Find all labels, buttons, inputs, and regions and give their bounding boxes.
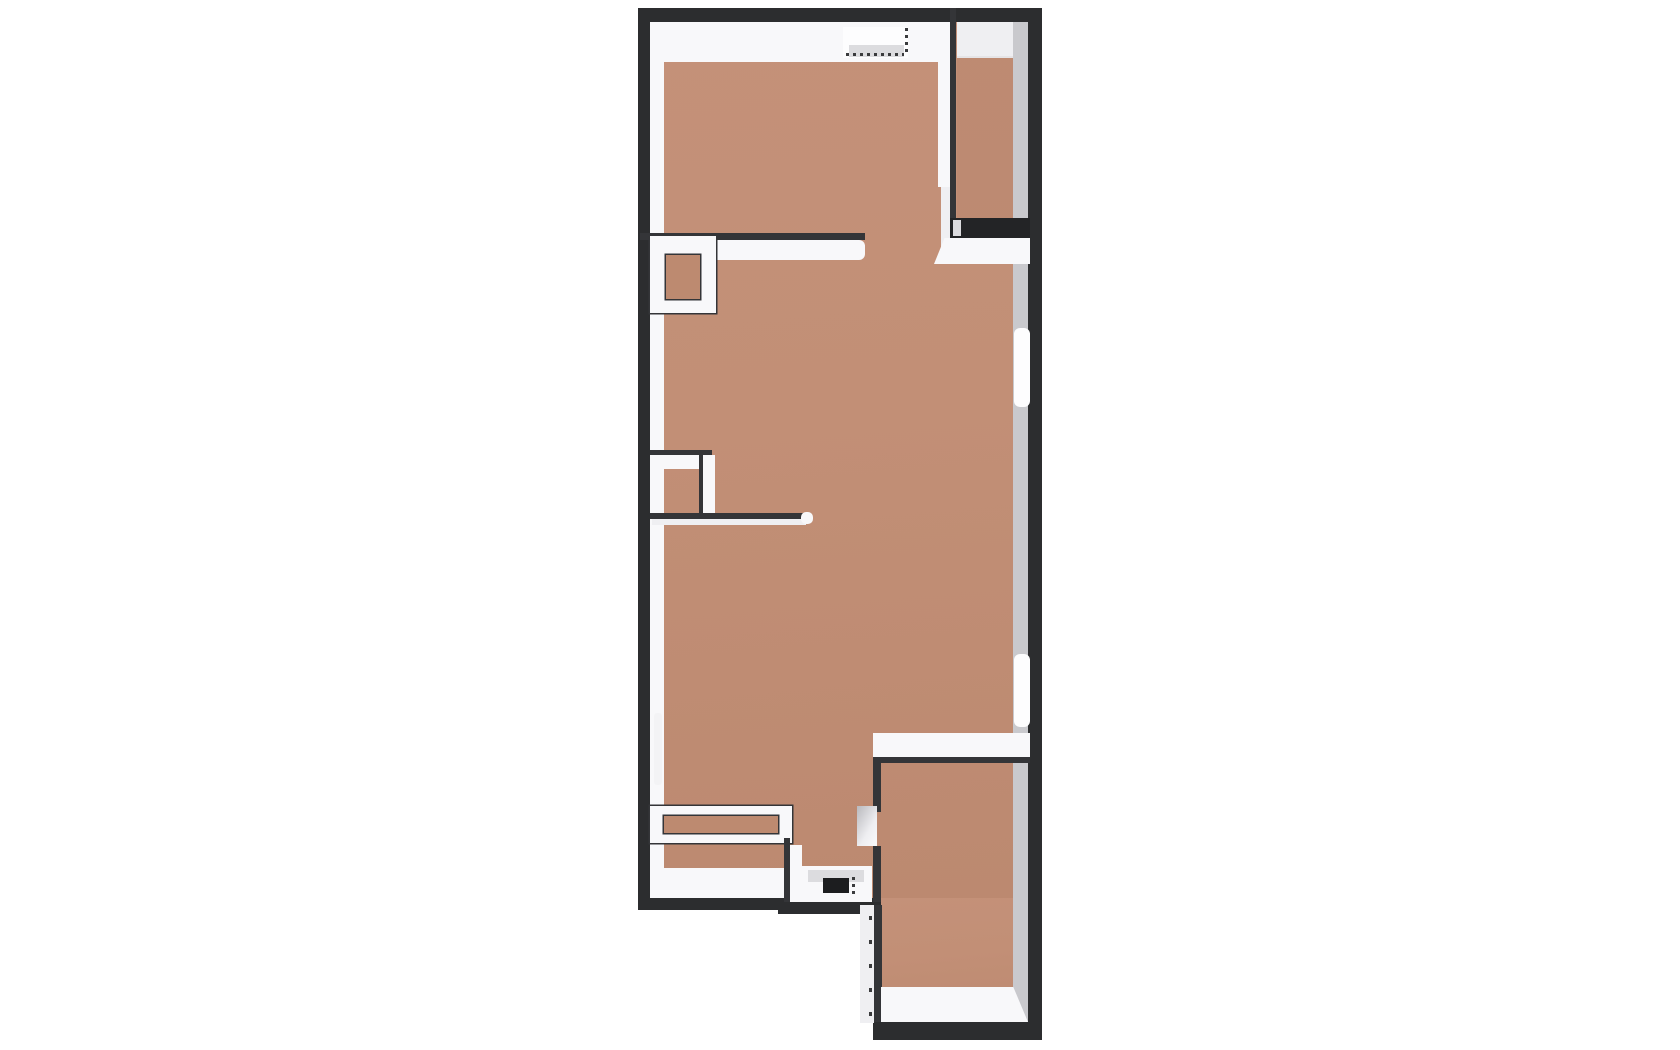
entry-door-leaf (823, 878, 849, 893)
entry-door-top-swing-dash-v (905, 28, 908, 56)
bottomright-room-west-wall-lower (873, 846, 881, 906)
extension-west-cap (874, 905, 882, 1022)
entry-door-swing-dash-v (852, 877, 855, 898)
wall-face-south-left (650, 868, 790, 898)
balcony-sill-face (934, 238, 1030, 264)
extension-door-swing-dash-v (869, 916, 872, 1016)
balcony-sill-notch (953, 220, 961, 236)
window-right-upper (1014, 328, 1030, 407)
partition-thin-wall-face (652, 519, 806, 525)
balcony-partition-wall (950, 8, 956, 220)
bottomright-room-north-face (873, 733, 1030, 757)
bottomright-room-south-face (881, 987, 1028, 1022)
low-wall-inner (664, 816, 778, 833)
window-right-lower (1014, 654, 1030, 727)
entry-door-top-swing-dash-h (846, 53, 904, 56)
balcony-floor-shade (957, 56, 1013, 218)
bottomright-room-west-wall-upper (873, 757, 881, 812)
closet-inner (666, 255, 700, 299)
balcony-sill-track (950, 218, 1030, 238)
bottomright-room-door-jamb (857, 806, 877, 846)
partition-thin-wall-tip (801, 512, 813, 524)
wall-face-east (1013, 22, 1028, 1022)
mid-jamb-vertical-face (703, 455, 715, 520)
bottomright-room-north-cap (876, 757, 1030, 763)
floor-plan-render (0, 0, 1680, 1050)
balcony-partition-face (938, 22, 950, 187)
window-left (654, 713, 662, 785)
